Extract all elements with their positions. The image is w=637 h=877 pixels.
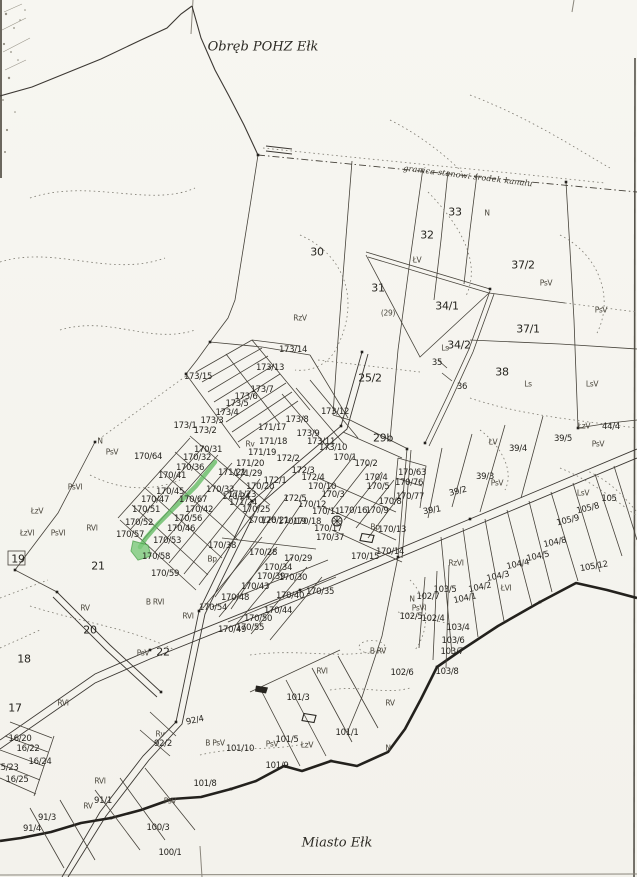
canal-boundary-note: granica stanowi środek kanału <box>403 164 533 189</box>
parcel-label: 44/4 <box>602 423 620 432</box>
parcel-label: 103/8 <box>436 668 459 677</box>
parcel-label: 170/58 <box>142 553 170 562</box>
parcel-label: 170/67 <box>179 496 207 505</box>
landuse-label: ŁzV <box>578 422 590 430</box>
parcel-label: 35 <box>432 359 442 368</box>
parcel-label: 170/48 <box>221 594 249 603</box>
parcel-label: 170/57 <box>116 531 144 540</box>
parcel-label: 91/1 <box>94 797 112 806</box>
landuse-label: RVI <box>86 524 97 532</box>
parcel-label: 17 <box>8 703 21 714</box>
parcel-label: 170/15 <box>351 553 379 562</box>
parcel-label: 170/43 <box>241 583 269 592</box>
parcel-label: 100/1 <box>159 849 182 858</box>
parcel-label: 101/3 <box>287 694 310 703</box>
parcel-label: 170/47 <box>141 496 169 505</box>
landuse-label: PsVI <box>68 483 82 491</box>
parcel-label: 30 <box>310 247 323 258</box>
parcel-label: 173/2 <box>194 427 217 436</box>
parcel-label: 170/63 <box>398 469 426 478</box>
landuse-label: RVI <box>94 777 105 785</box>
landuse-label: LsV <box>586 380 598 388</box>
parcel-label: 105/9 <box>556 514 580 528</box>
parcel-label: 170/64 <box>134 453 162 462</box>
parcel-label: 173/8 <box>286 416 309 425</box>
parcel-label: 101/9 <box>266 762 289 771</box>
parcel-label: 170/51 <box>132 506 160 515</box>
landuse-label: N <box>409 595 414 603</box>
parcel-label: 170/3 <box>322 491 345 500</box>
parcel-label: 25/2 <box>358 373 382 384</box>
landuse-label: N <box>97 437 102 445</box>
parcel-label: 170/13 <box>378 526 406 535</box>
parcel-label: 170/46 <box>167 525 195 534</box>
parcel-label: 38 <box>495 367 508 378</box>
landuse-label: RzVI <box>448 559 463 567</box>
parcel-label: 16/20 <box>9 735 32 744</box>
parcel-label: 22 <box>156 647 169 658</box>
parcel-label: 170/53 <box>153 537 181 546</box>
building-filled <box>255 684 269 695</box>
parcel-label: 170/24 <box>222 493 250 502</box>
parcel-label: 104/5 <box>526 550 550 563</box>
parcel-label: 103/6 <box>442 637 465 646</box>
parcel-label: 101/10 <box>226 745 254 754</box>
parcel-label: 105/8 <box>576 502 600 516</box>
parcel-label: 170/2 <box>355 460 378 469</box>
parcel-label: 170/32 <box>183 454 211 463</box>
landuse-label: PsVI <box>412 604 426 612</box>
parcel-label: 31 <box>371 283 384 294</box>
parcel-label: 170/40 <box>276 592 304 601</box>
landuse-label: PsV <box>137 649 150 657</box>
parcel-label: 103/7 <box>441 648 464 657</box>
parcel-label: 170/49 <box>218 626 246 635</box>
landuse-label: PsVI <box>51 529 65 537</box>
landuse-label: LsV <box>577 489 589 497</box>
parcel-label: 171/21 <box>218 469 246 478</box>
parcel-label: 102/6 <box>391 669 414 678</box>
landuse-label: B RVI <box>146 598 164 606</box>
landuse-label: RVI <box>316 667 327 675</box>
landuse-label: Rv <box>155 730 164 738</box>
parcel-label: 170/77 <box>396 493 424 502</box>
landuse-label: PsV <box>592 440 605 448</box>
parcel-label: 172/2 <box>277 455 300 464</box>
parcel-label: 39/1 <box>422 505 441 516</box>
landuse-label: ŁzV <box>31 507 43 515</box>
landuse-label: N <box>484 209 489 217</box>
parcel-label: 92/4 <box>185 715 204 727</box>
parcel-label: 101/8 <box>194 780 217 789</box>
landuse-label: RV <box>385 699 394 707</box>
parcel-label: 105 <box>601 495 616 504</box>
parcel-label: 37/1 <box>516 324 540 335</box>
circled-cross-symbol <box>330 514 344 528</box>
building-outline <box>359 531 377 546</box>
parcel-label: 170/35 <box>306 588 334 597</box>
parcel-label: 170/25 <box>242 506 270 515</box>
landuse-label: RVI <box>182 612 193 620</box>
landuse-label: PsV <box>164 797 177 805</box>
parcel-label: 173/12 <box>321 408 349 417</box>
parcel-label: 29b <box>373 433 393 444</box>
parcel-label: 37/2 <box>511 260 535 271</box>
parcel-label: 171/18 <box>259 438 287 447</box>
parcel-label: 170/52 <box>125 519 153 528</box>
landuse-label: B PsV <box>205 739 224 747</box>
landuse-label: PsV <box>540 279 553 287</box>
landuse-label: N <box>385 744 390 752</box>
parcel-label: 173/14 <box>279 346 307 355</box>
parcel-label: 173/1 <box>174 422 197 431</box>
landuse-label: Ls <box>524 380 532 388</box>
landuse-label: PsV <box>266 740 279 748</box>
parcel-label: 170/76 <box>395 479 423 488</box>
parcel-label: 170/14 <box>376 548 404 557</box>
parcel-label: 170/54 <box>199 604 227 613</box>
parcel-label: 170/59 <box>151 570 179 579</box>
landuse-label: RV <box>80 604 89 612</box>
parcel-label: 173/3 <box>201 417 224 426</box>
parcel-label: 102/7 <box>417 593 440 602</box>
parcel-label: 39/4 <box>509 445 527 454</box>
parcel-label: 39/2 <box>448 486 467 499</box>
parcel-label: 91/4 <box>23 825 41 834</box>
parcel-label: 170/56 <box>174 515 202 524</box>
parcel-label: 15/23 <box>0 764 19 773</box>
parcel-label: 104/4 <box>506 558 530 571</box>
landuse-label: RVI <box>57 699 68 707</box>
parcel-label: 171/19 <box>248 449 276 458</box>
parcel-label: 92/2 <box>154 740 172 749</box>
landuse-label: Rv <box>245 440 254 448</box>
parcel-label: 173/15 <box>184 373 212 382</box>
parcel-label: 170/5 <box>367 483 390 492</box>
parcel-label: 34/1 <box>435 301 459 312</box>
landuse-label: RzV <box>293 314 306 322</box>
landuse-label: ŁV <box>413 256 422 264</box>
parcel-label: 16/22 <box>17 745 40 754</box>
parcel-label: 170/41 <box>158 472 186 481</box>
parcel-label: 18 <box>17 654 30 665</box>
parcel-label: 170/9 <box>366 507 389 516</box>
parcel-label: 173/10 <box>319 444 347 453</box>
parcel-label: 21 <box>91 561 104 572</box>
landuse-label: B RV <box>370 647 386 655</box>
parcel-label: 101/1 <box>336 729 359 738</box>
building-outline <box>301 711 319 726</box>
parcel-label: 36 <box>457 383 467 392</box>
parcel-label: 100/3 <box>147 824 170 833</box>
landuse-label: (29) <box>381 309 395 317</box>
parcel-label: 170/38 <box>208 542 236 551</box>
parcel-label: 173/13 <box>256 364 284 373</box>
landuse-label: PsV <box>106 448 119 456</box>
landuse-label: ŁzVI <box>20 529 34 537</box>
parcel-label: 102/4 <box>422 615 445 624</box>
parcel-label: 33 <box>448 207 461 218</box>
parcel-label: 170/28 <box>249 549 277 558</box>
parcel-label: 39/5 <box>554 435 572 444</box>
parcel-label: 20 <box>83 625 96 636</box>
parcel-label: 91/3 <box>38 814 56 823</box>
parcel-label: 19 <box>11 554 24 565</box>
landuse-label: ŁVI <box>501 584 512 592</box>
landuse-label: Bp <box>207 555 216 563</box>
landuse-label: ŁV <box>489 438 498 446</box>
parcel-label: 170/30 <box>279 574 307 583</box>
parcel-label: 16/24 <box>29 758 52 767</box>
parcel-label: 170/37 <box>316 534 344 543</box>
landuse-label: PsV <box>595 306 608 314</box>
landuse-label: RV <box>83 802 92 810</box>
parcel-label: 171/17 <box>258 424 286 433</box>
parcel-label: 101/5 <box>276 736 299 745</box>
region-title: Obręb POHZ Ełk <box>208 40 319 55</box>
city-title: Miasto Ełk <box>302 836 373 851</box>
landuse-label: PsV <box>491 479 504 487</box>
parcel-label: 105/12 <box>579 560 608 573</box>
parcel-label: 170/20 <box>246 483 274 492</box>
parcel-label: 32 <box>420 230 433 241</box>
parcel-label: 104/8 <box>543 536 567 549</box>
parcel-label: 170/1 <box>334 454 357 463</box>
label-layer: Obręb POHZ Ełk Miasto Ełk granica stanow… <box>0 0 637 877</box>
parcel-label: 104/1 <box>453 592 477 605</box>
parcel-label: 16/25 <box>6 776 29 785</box>
parcel-label: 103/4 <box>447 624 470 633</box>
cadastral-map-scan: Obręb POHZ Ełk Miasto Ełk granica stanow… <box>0 0 637 877</box>
parcel-label: 34/2 <box>447 340 471 351</box>
parcel-label: 102/5 <box>400 613 423 622</box>
landuse-label: ŁzV <box>301 741 313 749</box>
